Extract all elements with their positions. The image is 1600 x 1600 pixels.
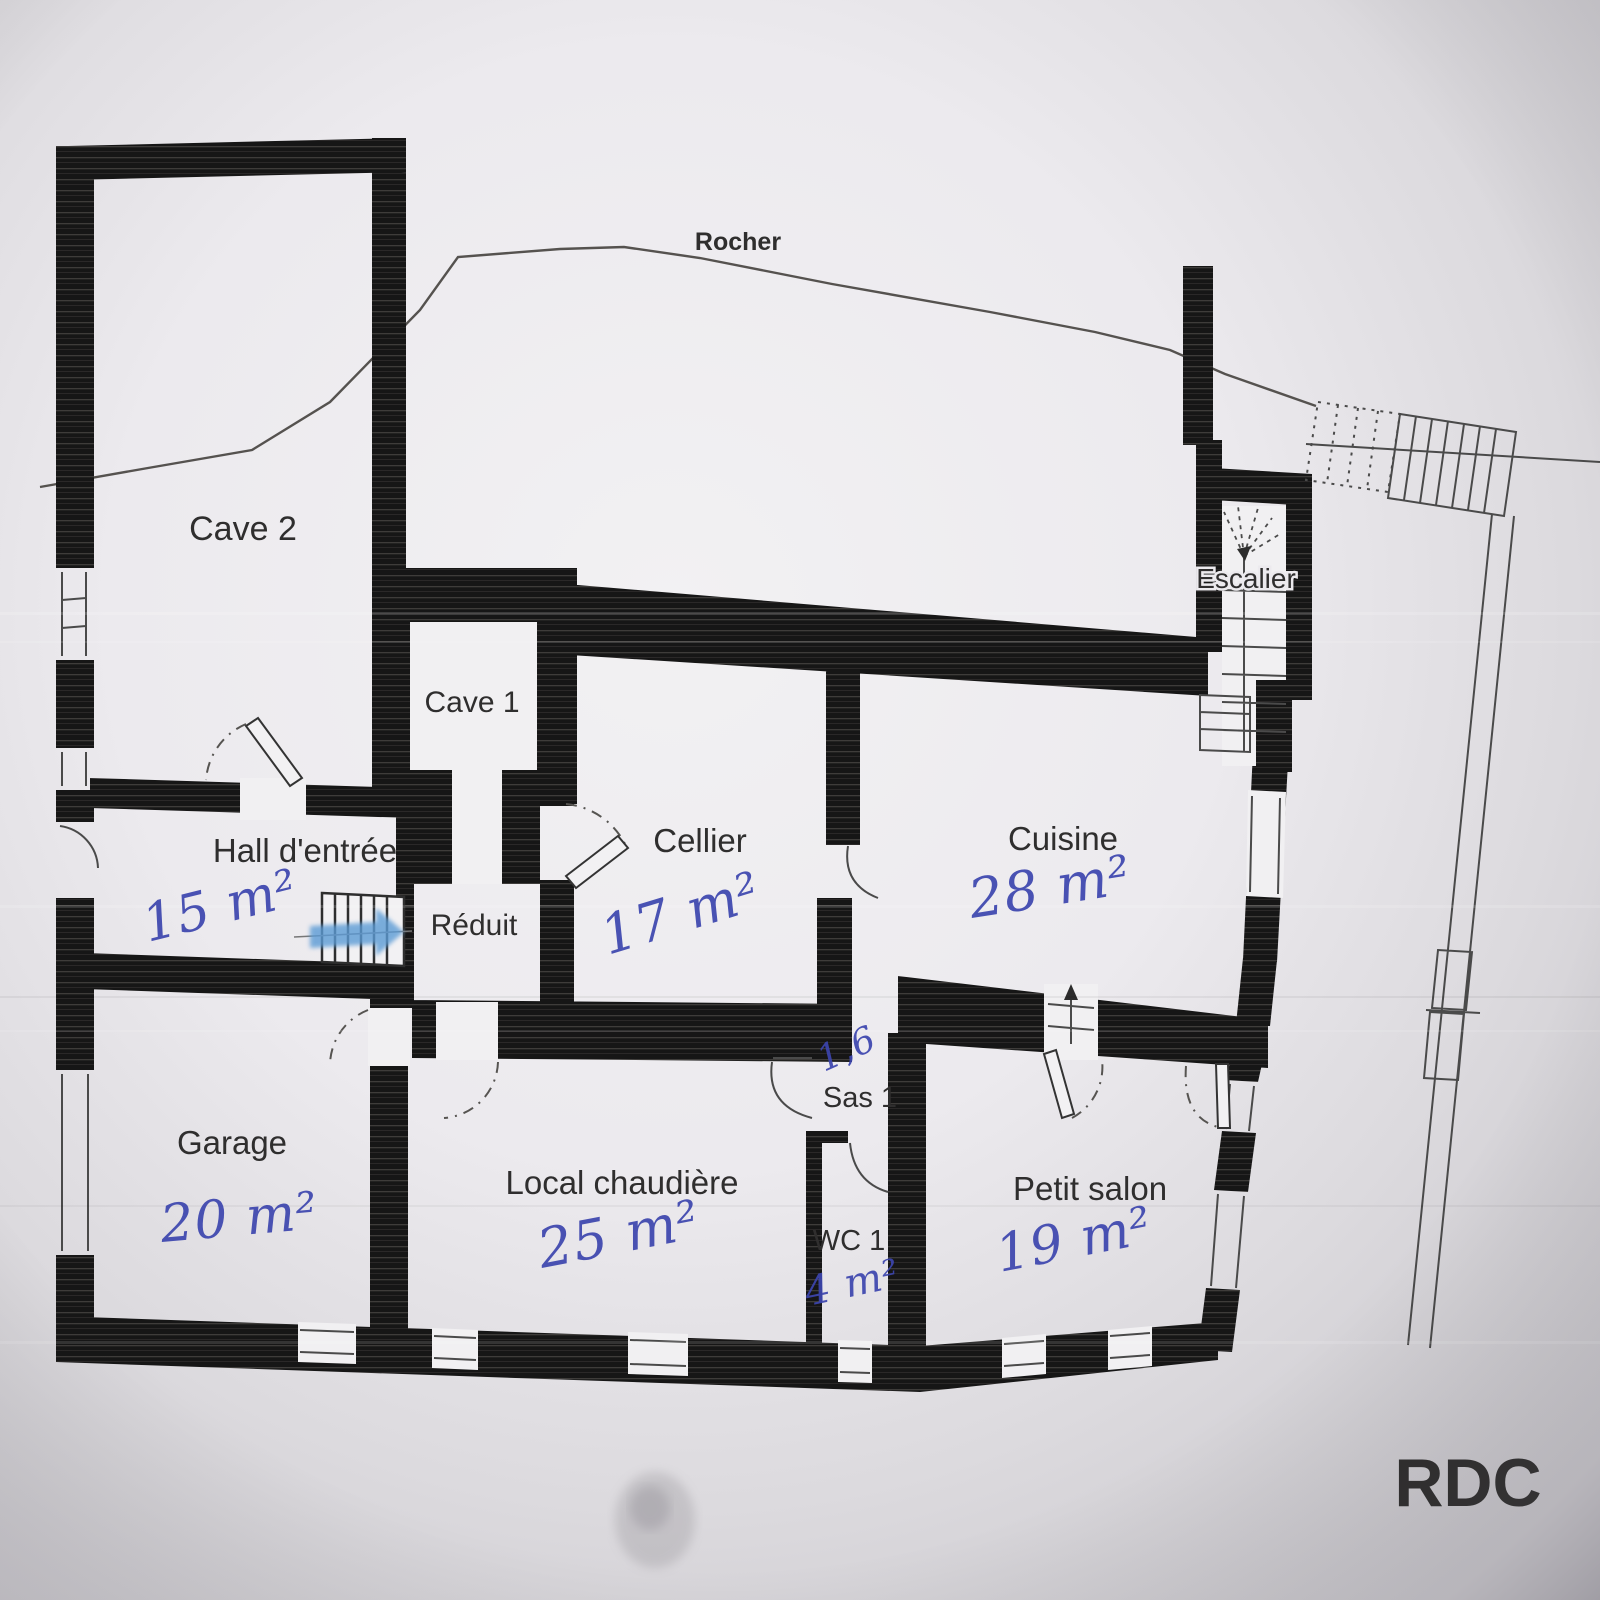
floor-plan-canvas: Rocher Cave 2 Cave 1 Hall d'entrée Rédui… (0, 0, 1600, 1600)
scanned-floor-plan-page: Rocher Cave 2 Cave 1 Hall d'entrée Rédui… (0, 0, 1600, 1600)
scan-vignette (0, 0, 1600, 1600)
